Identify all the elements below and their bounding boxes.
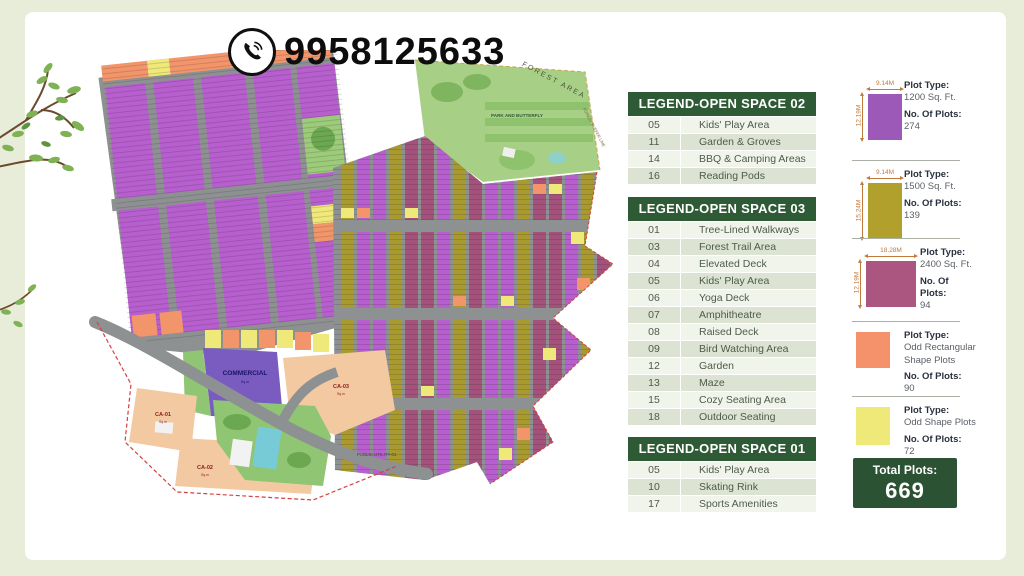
legend-row: 13Maze <box>628 375 816 391</box>
legend-row-label: Bird Watching Area <box>681 341 816 357</box>
total-plots-label: Total Plots: <box>873 463 937 477</box>
legend-row: 03Forest Trail Area <box>628 239 816 255</box>
plot-type-label: Plot Type: <box>904 330 976 342</box>
legend-row: 14BBQ & Camping Areas <box>628 151 816 167</box>
plot-type-value: Odd Rectangular Shape Plots <box>904 342 976 367</box>
legend-row-num: 13 <box>628 375 680 391</box>
map-label-ca02-area: Sq.m <box>201 473 209 477</box>
legend-row-num: 12 <box>628 358 680 374</box>
legend-row: 08Raised Deck <box>628 324 816 340</box>
plot-swatch <box>856 407 890 445</box>
legend-row-label: Kids' Play Area <box>681 462 816 478</box>
plot-count-value: 139 <box>904 210 962 222</box>
legend-row-num: 01 <box>628 222 680 238</box>
dim-width-label: 18.28M <box>866 247 916 254</box>
plot-count-value: 90 <box>904 383 976 395</box>
dim-width-label: 9.14M <box>868 169 902 176</box>
legend-header: LEGEND-OPEN SPACE 02 <box>628 92 816 116</box>
legend-row-num: 10 <box>628 479 680 495</box>
plot-type-1500: 9.14M 15.24M Plot Type: 1500 Sq. Ft. No.… <box>852 169 962 245</box>
plot-count-label: No. Of Plots: <box>904 109 962 121</box>
branch-decoration-icon <box>0 268 44 358</box>
legend-row-num: 06 <box>628 290 680 306</box>
plot-type-label: Plot Type: <box>904 80 962 92</box>
legend-row-label: Amphitheatre <box>681 307 816 323</box>
plot-count-value: 72 <box>904 446 976 458</box>
total-plots-value: 669 <box>885 478 925 504</box>
legend-row-num: 05 <box>628 117 680 133</box>
divider <box>852 160 960 161</box>
legend-row-label: Skating Rink <box>681 479 816 495</box>
legend-open-space-02: LEGEND-OPEN SPACE 02 05Kids' Play Area 1… <box>628 92 816 184</box>
plot-count-label: No. Of Plots: <box>920 276 972 301</box>
legend-row-label: Raised Deck <box>681 324 816 340</box>
legend-row-num: 18 <box>628 409 680 425</box>
legend-row-num: 08 <box>628 324 680 340</box>
plot-type-label: Plot Type: <box>904 405 976 417</box>
legend-row: 18Outdoor Seating <box>628 409 816 425</box>
legend-row-label: Tree-Lined Walkways <box>681 222 816 238</box>
plot-type-value: Odd Shape Plots <box>904 417 976 429</box>
map-label-ca01-area: Sq.m <box>159 420 167 424</box>
legend-row: 01Tree-Lined Walkways <box>628 222 816 238</box>
divider <box>852 396 960 397</box>
legend-header: LEGEND-OPEN SPACE 01 <box>628 437 816 461</box>
plot-type-1200: 9.14M 12.19M Plot Type: 1200 Sq. Ft. No.… <box>852 80 962 154</box>
legend-row-label: Yoga Deck <box>681 290 816 306</box>
plot-count-value: 274 <box>904 121 962 133</box>
plot-swatch <box>868 94 902 140</box>
legend-row-num: 17 <box>628 496 680 512</box>
plot-swatch <box>866 261 916 307</box>
plot-count-value: 94 <box>920 300 972 312</box>
phone-icon <box>228 28 276 76</box>
legend-row: 17Sports Amenities <box>628 496 816 512</box>
legend-row: 05Kids' Play Area <box>628 462 816 478</box>
legend-row: 06Yoga Deck <box>628 290 816 306</box>
legend-row-label: Elevated Deck <box>681 256 816 272</box>
legend-open-space-03: LEGEND-OPEN SPACE 03 01Tree-Lined Walkwa… <box>628 197 816 425</box>
phone-badge[interactable]: 9958125633 <box>228 28 505 76</box>
map-label-ca03-area: Sq.m <box>337 392 345 396</box>
legend-row-num: 04 <box>628 256 680 272</box>
divider <box>852 321 960 322</box>
legend-row-label: Sports Amenities <box>681 496 816 512</box>
map-label-commercial: COMMERCIAL <box>223 370 268 377</box>
map-plot-grid <box>329 136 629 486</box>
legend-row: 07Amphitheatre <box>628 307 816 323</box>
legend-row: 15Cozy Seating Area <box>628 392 816 408</box>
plot-type-value: 1200 Sq. Ft. <box>904 92 962 104</box>
legend-open-space-01: LEGEND-OPEN SPACE 01 05Kids' Play Area 1… <box>628 437 816 512</box>
legend-row-num: 05 <box>628 273 680 289</box>
legend-row: 12Garden <box>628 358 816 374</box>
legend-row: 04Elevated Deck <box>628 256 816 272</box>
legend-row-num: 05 <box>628 462 680 478</box>
map-label-commercial-area: Sq.m <box>241 380 249 384</box>
plot-type-odd-shape: Plot Type: Odd Shape Plots No. Of Plots:… <box>852 405 976 461</box>
plot-type-label: Plot Type: <box>920 247 972 259</box>
legend-row: 16Reading Pods <box>628 168 816 184</box>
plot-swatch <box>868 183 902 239</box>
map-label-ca03: CA-03 <box>333 384 349 390</box>
plot-swatch <box>856 332 890 368</box>
legend-row-num: 11 <box>628 134 680 150</box>
map-label-ca02: CA-02 <box>197 465 213 471</box>
plot-count-label: No. Of Plots: <box>904 371 976 383</box>
legend-row-num: 14 <box>628 151 680 167</box>
legend-row-num: 15 <box>628 392 680 408</box>
legend-row-label: Reading Pods <box>681 168 816 184</box>
legend-header: LEGEND-OPEN SPACE 03 <box>628 197 816 221</box>
branch-decoration-icon <box>0 48 88 228</box>
plot-type-odd-rectangular: Plot Type: Odd Rectangular Shape Plots N… <box>852 330 976 396</box>
plot-type-value: 1500 Sq. Ft. <box>904 181 962 193</box>
legend-row: 10Skating Rink <box>628 479 816 495</box>
legend-row-label: Maze <box>681 375 816 391</box>
plot-count-label: No. Of Plots: <box>904 434 976 446</box>
legend-row-label: BBQ & Camping Areas <box>681 151 816 167</box>
plot-type-2400: 18.28M 12.19M Plot Type: 2400 Sq. Ft. No… <box>852 247 972 323</box>
legend-row-label: Forest Trail Area <box>681 239 816 255</box>
phone-number: 9958125633 <box>284 31 505 74</box>
divider <box>852 238 960 239</box>
legend-row-label: Garden & Groves <box>681 134 816 150</box>
total-plots-box: Total Plots: 669 <box>853 458 957 508</box>
legend-row-label: Outdoor Seating <box>681 409 816 425</box>
dim-width-label: 9.14M <box>868 80 902 87</box>
site-map: FOREST AREA FOREST BUFFER LINE PARK AND … <box>85 50 630 525</box>
map-block-northwest <box>97 50 368 368</box>
map-label-ca01: CA-01 <box>155 412 171 418</box>
map-label-park: PARK AND BUTTERFLY <box>491 113 543 118</box>
legend-row-label: Cozy Seating Area <box>681 392 816 408</box>
legend-row: 11Garden & Groves <box>628 134 816 150</box>
legend-row: 09Bird Watching Area <box>628 341 816 357</box>
legend-row-num: 07 <box>628 307 680 323</box>
plot-type-label: Plot Type: <box>904 169 962 181</box>
plot-type-value: 2400 Sq. Ft. <box>920 259 972 271</box>
legend-row-num: 03 <box>628 239 680 255</box>
legend-row-label: Kids' Play Area <box>681 273 816 289</box>
legend-row: 05Kids' Play Area <box>628 117 816 133</box>
plot-count-label: No. Of Plots: <box>904 198 962 210</box>
map-label-public-utility: PUBLIC UTILITY-01 <box>357 452 397 457</box>
legend-row-num: 09 <box>628 341 680 357</box>
legend-row-num: 16 <box>628 168 680 184</box>
legend-row-label: Kids' Play Area <box>681 117 816 133</box>
legend-row-label: Garden <box>681 358 816 374</box>
legend-row: 05Kids' Play Area <box>628 273 816 289</box>
